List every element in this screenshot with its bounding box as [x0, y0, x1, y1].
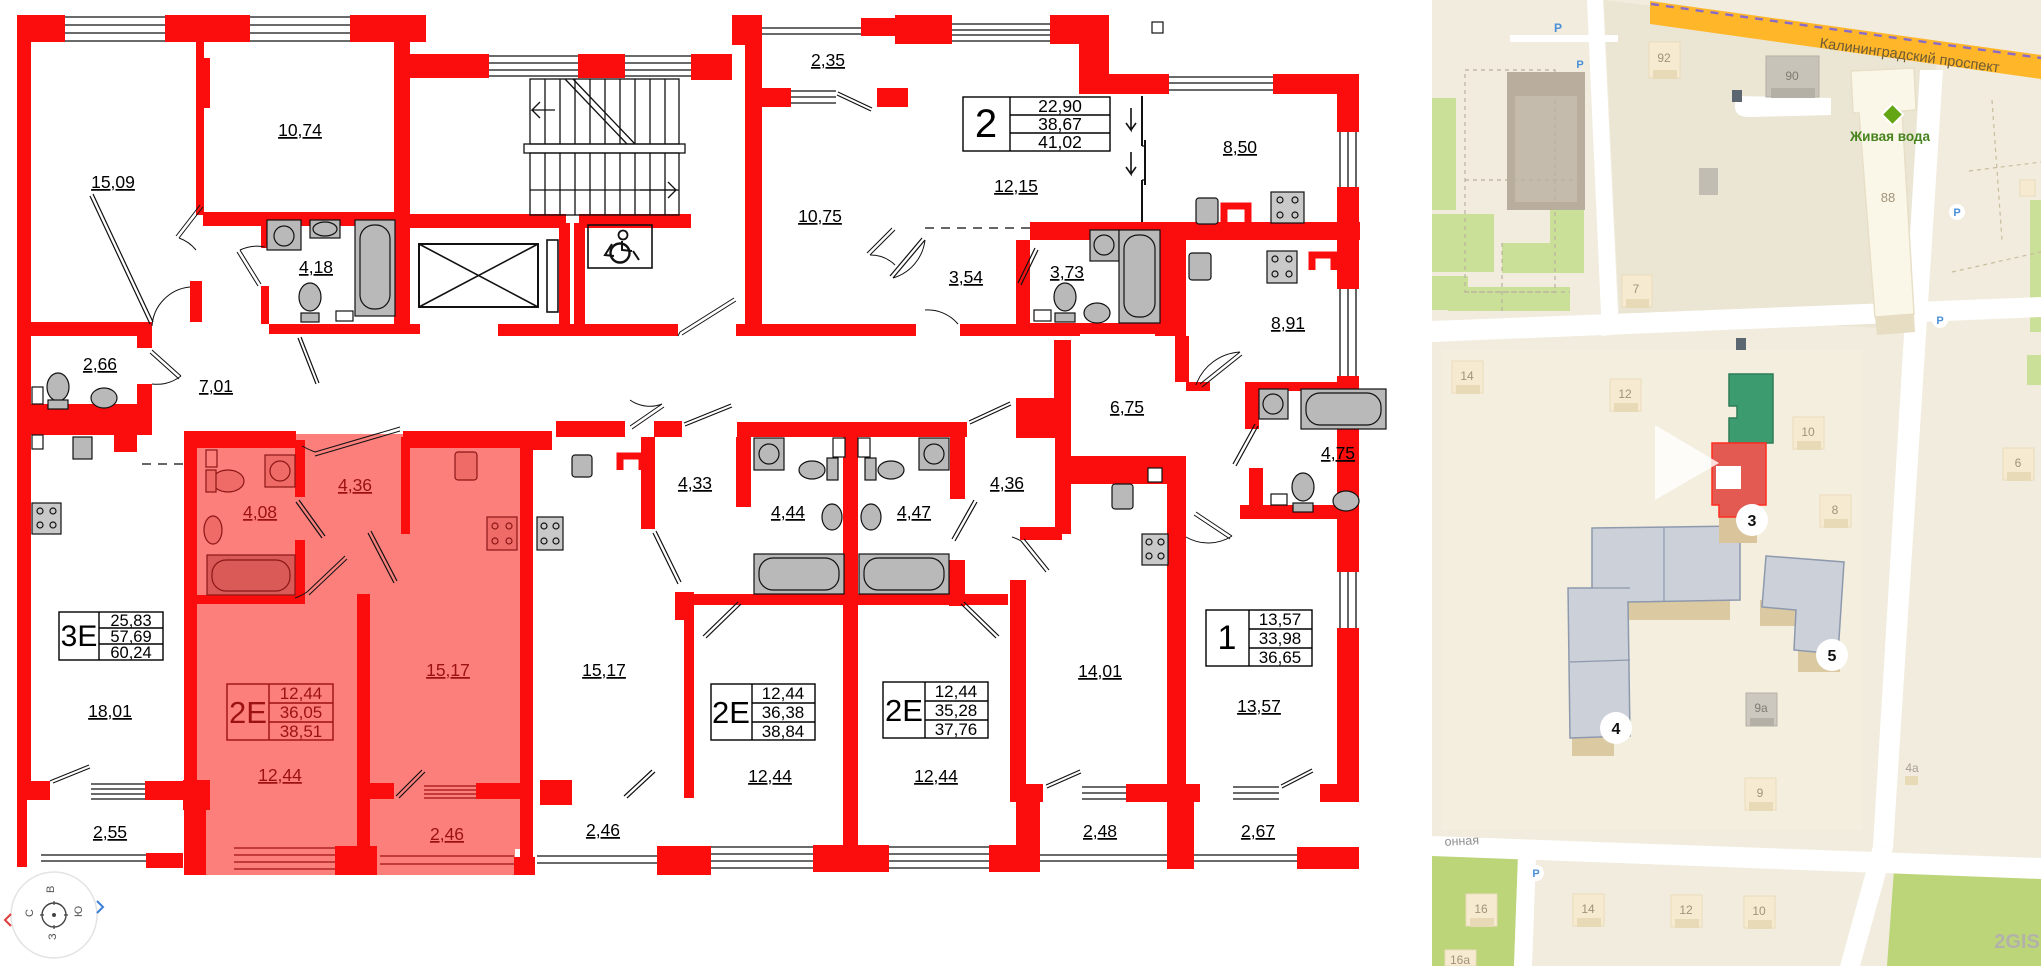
- svg-text:36,05: 36,05: [280, 703, 323, 722]
- svg-text:В: В: [45, 886, 57, 893]
- svg-text:P: P: [1532, 868, 1539, 880]
- svg-text:35,28: 35,28: [935, 701, 978, 720]
- svg-text:10: 10: [1752, 904, 1766, 918]
- svg-text:2,46: 2,46: [430, 824, 464, 844]
- svg-text:38,67: 38,67: [1038, 114, 1082, 134]
- svg-text:2GIS: 2GIS: [1994, 931, 2040, 953]
- svg-text:6,75: 6,75: [1110, 397, 1144, 417]
- svg-text:12: 12: [1618, 387, 1632, 401]
- svg-text:10,74: 10,74: [278, 120, 322, 140]
- svg-text:13,57: 13,57: [1237, 696, 1281, 716]
- svg-text:4,33: 4,33: [678, 473, 712, 493]
- svg-text:37,76: 37,76: [935, 720, 978, 739]
- svg-text:3: 3: [1748, 513, 1757, 530]
- svg-text:33,98: 33,98: [1259, 629, 1302, 648]
- svg-text:2E: 2E: [885, 693, 923, 728]
- svg-text:22,90: 22,90: [1038, 96, 1082, 116]
- svg-text:2,66: 2,66: [83, 354, 117, 374]
- svg-text:12,44: 12,44: [280, 684, 323, 703]
- svg-text:4,08: 4,08: [243, 502, 277, 522]
- svg-text:18,01: 18,01: [88, 701, 132, 721]
- svg-text:9: 9: [1757, 786, 1764, 800]
- svg-text:90: 90: [1785, 69, 1799, 83]
- svg-text:38,84: 38,84: [762, 722, 805, 741]
- svg-text:7: 7: [1633, 282, 1640, 296]
- svg-text:4,44: 4,44: [771, 502, 805, 522]
- svg-text:16: 16: [1474, 902, 1488, 916]
- svg-text:60,24: 60,24: [110, 644, 151, 662]
- svg-text:2E: 2E: [712, 695, 750, 730]
- svg-text:Живая вода: Живая вода: [1849, 129, 1931, 144]
- svg-text:З: З: [47, 933, 59, 940]
- svg-text:9a: 9a: [1754, 701, 1768, 715]
- svg-text:6: 6: [2015, 456, 2022, 470]
- svg-text:С: С: [24, 909, 36, 917]
- svg-text:5: 5: [1828, 648, 1837, 665]
- svg-text:2,35: 2,35: [811, 50, 845, 70]
- svg-text:P: P: [1936, 315, 1943, 327]
- svg-text:13,57: 13,57: [1259, 610, 1302, 629]
- svg-text:4a: 4a: [1905, 761, 1919, 775]
- svg-text:4,18: 4,18: [299, 257, 333, 277]
- svg-text:8: 8: [1832, 503, 1839, 517]
- svg-text:8,50: 8,50: [1223, 137, 1257, 157]
- svg-text:4: 4: [1612, 721, 1621, 738]
- svg-text:14,01: 14,01: [1078, 661, 1122, 681]
- svg-text:10,75: 10,75: [798, 206, 842, 226]
- svg-text:16a: 16a: [1450, 953, 1470, 966]
- svg-text:88: 88: [1881, 190, 1895, 205]
- svg-text:12,44: 12,44: [258, 765, 302, 785]
- svg-text:14: 14: [1460, 369, 1474, 383]
- svg-text:12,44: 12,44: [935, 682, 978, 701]
- svg-text:2E: 2E: [229, 695, 267, 730]
- svg-text:P: P: [1576, 59, 1583, 71]
- svg-text:36,65: 36,65: [1259, 648, 1302, 667]
- svg-text:12,44: 12,44: [762, 684, 805, 703]
- svg-text:7,01: 7,01: [199, 376, 233, 396]
- svg-text:38,51: 38,51: [280, 722, 323, 741]
- svg-text:4,75: 4,75: [1321, 443, 1355, 463]
- svg-text:2: 2: [975, 102, 997, 146]
- svg-text:P: P: [1554, 21, 1562, 35]
- svg-text:3,73: 3,73: [1050, 262, 1084, 282]
- svg-text:P: P: [1953, 207, 1960, 219]
- svg-text:4,47: 4,47: [897, 502, 931, 522]
- svg-text:2,48: 2,48: [1083, 821, 1117, 841]
- svg-text:1: 1: [1218, 619, 1237, 657]
- svg-text:3,54: 3,54: [949, 267, 983, 287]
- svg-text:12,15: 12,15: [994, 176, 1038, 196]
- svg-text:10: 10: [1801, 425, 1815, 439]
- svg-text:15,09: 15,09: [91, 172, 135, 192]
- svg-text:2,55: 2,55: [93, 822, 127, 842]
- svg-text:8,91: 8,91: [1271, 313, 1305, 333]
- svg-text:92: 92: [1657, 51, 1671, 65]
- svg-text:4,36: 4,36: [338, 475, 372, 495]
- svg-text:Ю: Ю: [73, 906, 85, 917]
- svg-text:4,36: 4,36: [990, 473, 1024, 493]
- svg-text:онная: онная: [1444, 833, 1479, 849]
- svg-text:15,17: 15,17: [426, 660, 470, 680]
- svg-text:41,02: 41,02: [1038, 132, 1082, 152]
- svg-text:15,17: 15,17: [582, 660, 626, 680]
- svg-text:12: 12: [1679, 903, 1693, 917]
- svg-text:36,38: 36,38: [762, 703, 805, 722]
- svg-text:3E: 3E: [61, 620, 98, 653]
- svg-text:12,44: 12,44: [748, 766, 792, 786]
- svg-text:2,46: 2,46: [586, 820, 620, 840]
- svg-text:14: 14: [1581, 902, 1595, 916]
- svg-text:2,67: 2,67: [1241, 821, 1275, 841]
- svg-text:12,44: 12,44: [914, 766, 958, 786]
